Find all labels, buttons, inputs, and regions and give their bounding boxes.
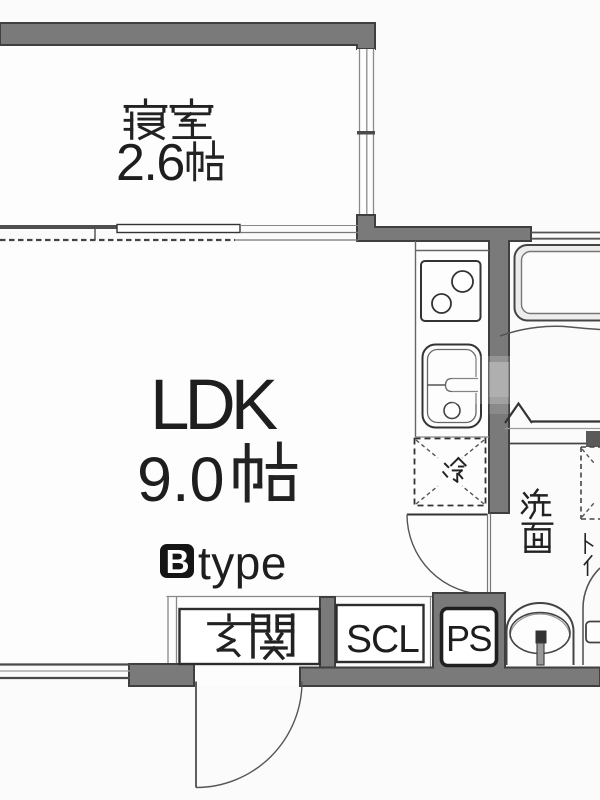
svg-text:LDK: LDK	[150, 366, 278, 445]
svg-text:2.6: 2.6	[116, 134, 184, 192]
svg-text:type: type	[198, 537, 287, 589]
svg-text:9.0: 9.0	[137, 445, 225, 515]
svg-text:PS: PS	[446, 618, 492, 659]
svg-text:SCL: SCL	[346, 618, 419, 661]
svg-text:B: B	[166, 543, 190, 580]
